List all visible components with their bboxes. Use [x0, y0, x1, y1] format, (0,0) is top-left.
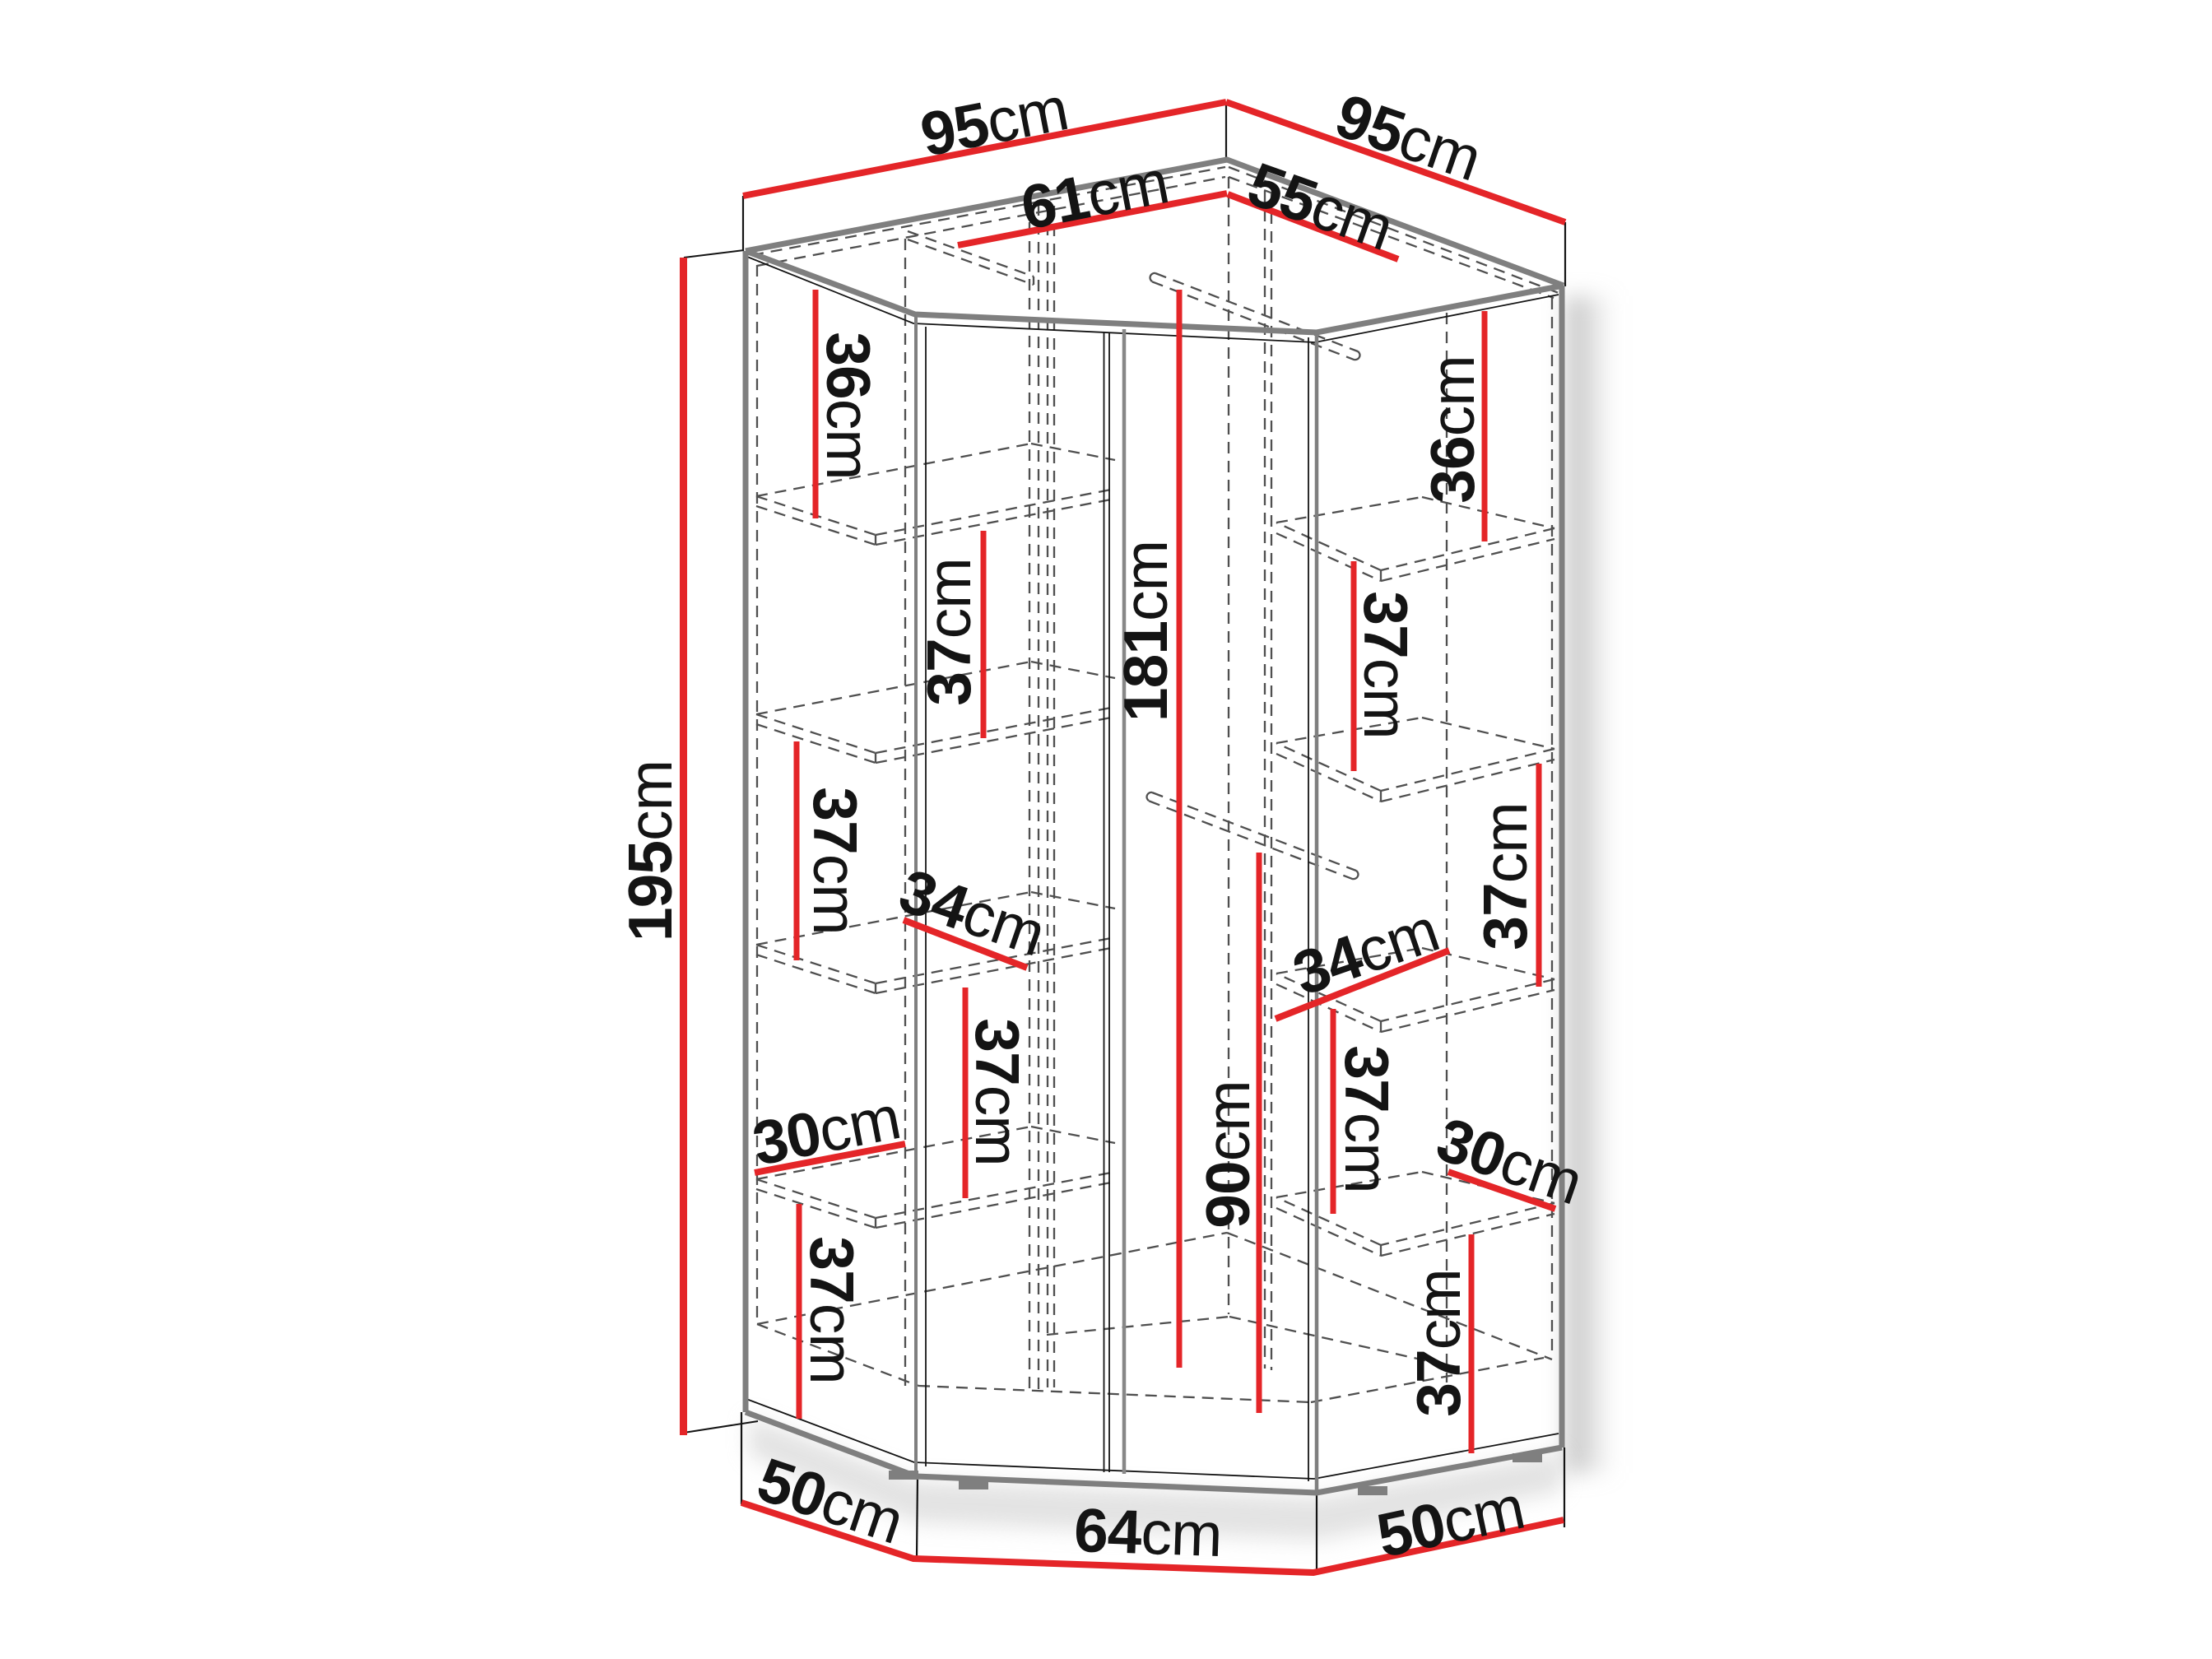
svg-text:95cm: 95cm [915, 73, 1073, 170]
svg-text:36cm: 36cm [814, 332, 883, 479]
svg-text:37cm: 37cm [963, 1018, 1032, 1165]
svg-text:37cm: 37cm [1351, 591, 1420, 738]
svg-text:37cm: 37cm [1332, 1045, 1401, 1192]
svg-text:37cm: 37cm [797, 1236, 867, 1383]
svg-text:36cm: 36cm [1418, 355, 1487, 503]
svg-text:61cm: 61cm [1015, 146, 1173, 243]
svg-text:90cm: 90cm [1193, 1080, 1262, 1228]
svg-text:30cm: 30cm [747, 1082, 905, 1178]
svg-text:95cm: 95cm [1327, 80, 1489, 193]
svg-text:195cm: 195cm [616, 760, 685, 941]
svg-text:37cm: 37cm [914, 558, 983, 705]
svg-text:181cm: 181cm [1111, 541, 1180, 722]
svg-text:37cm: 37cm [1404, 1269, 1473, 1416]
svg-text:55cm: 55cm [1239, 149, 1401, 263]
svg-text:37cm: 37cm [1471, 802, 1540, 950]
svg-text:37cm: 37cm [801, 787, 870, 934]
svg-text:64cm: 64cm [1073, 1495, 1223, 1569]
